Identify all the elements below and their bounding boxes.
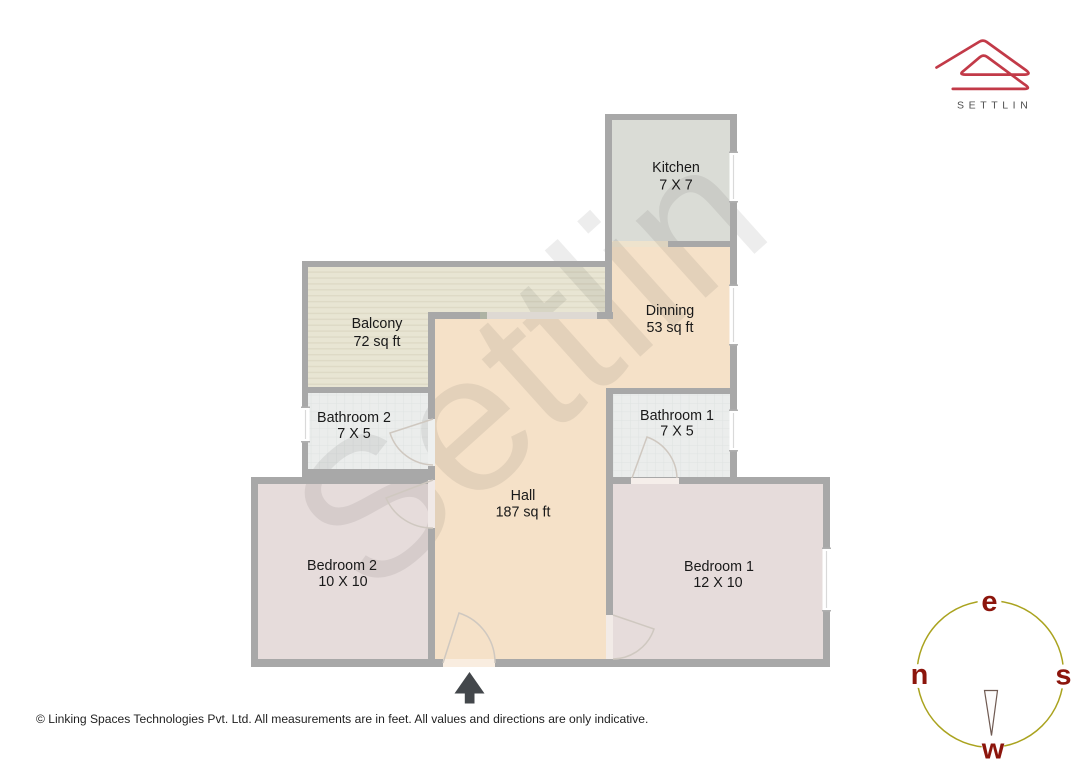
svg-text:s: s: [1055, 660, 1071, 692]
svg-text:n: n: [911, 659, 929, 691]
svg-text:SETTLIN: SETTLIN: [957, 100, 1032, 112]
svg-text:Balcony: Balcony: [352, 316, 404, 332]
svg-text:Bathroom 2: Bathroom 2: [317, 410, 391, 426]
svg-text:Dinning: Dinning: [646, 303, 695, 319]
svg-text:53 sq ft: 53 sq ft: [647, 320, 694, 336]
svg-text:Bedroom 1: Bedroom 1: [684, 559, 754, 575]
svg-text:w: w: [981, 734, 1005, 764]
svg-text:e: e: [981, 586, 997, 618]
svg-text:72 sq ft: 72 sq ft: [354, 334, 401, 350]
svg-text:Kitchen: Kitchen: [652, 160, 700, 176]
svg-text:Bedroom 2: Bedroom 2: [307, 558, 377, 574]
svg-text:Hall: Hall: [511, 488, 536, 504]
svg-text:10 X 10: 10 X 10: [318, 574, 367, 590]
svg-text:7 X 5: 7 X 5: [337, 426, 370, 442]
svg-text:Bathroom 1: Bathroom 1: [640, 408, 714, 424]
svg-text:7 X 5: 7 X 5: [660, 424, 693, 440]
svg-text:12 X 10: 12 X 10: [693, 575, 742, 591]
svg-text:187 sq ft: 187 sq ft: [496, 505, 551, 521]
svg-text:7 X 7: 7 X 7: [659, 178, 692, 194]
svg-text:© Linking Spaces Technologies: © Linking Spaces Technologies Pvt. Ltd. …: [36, 712, 648, 726]
